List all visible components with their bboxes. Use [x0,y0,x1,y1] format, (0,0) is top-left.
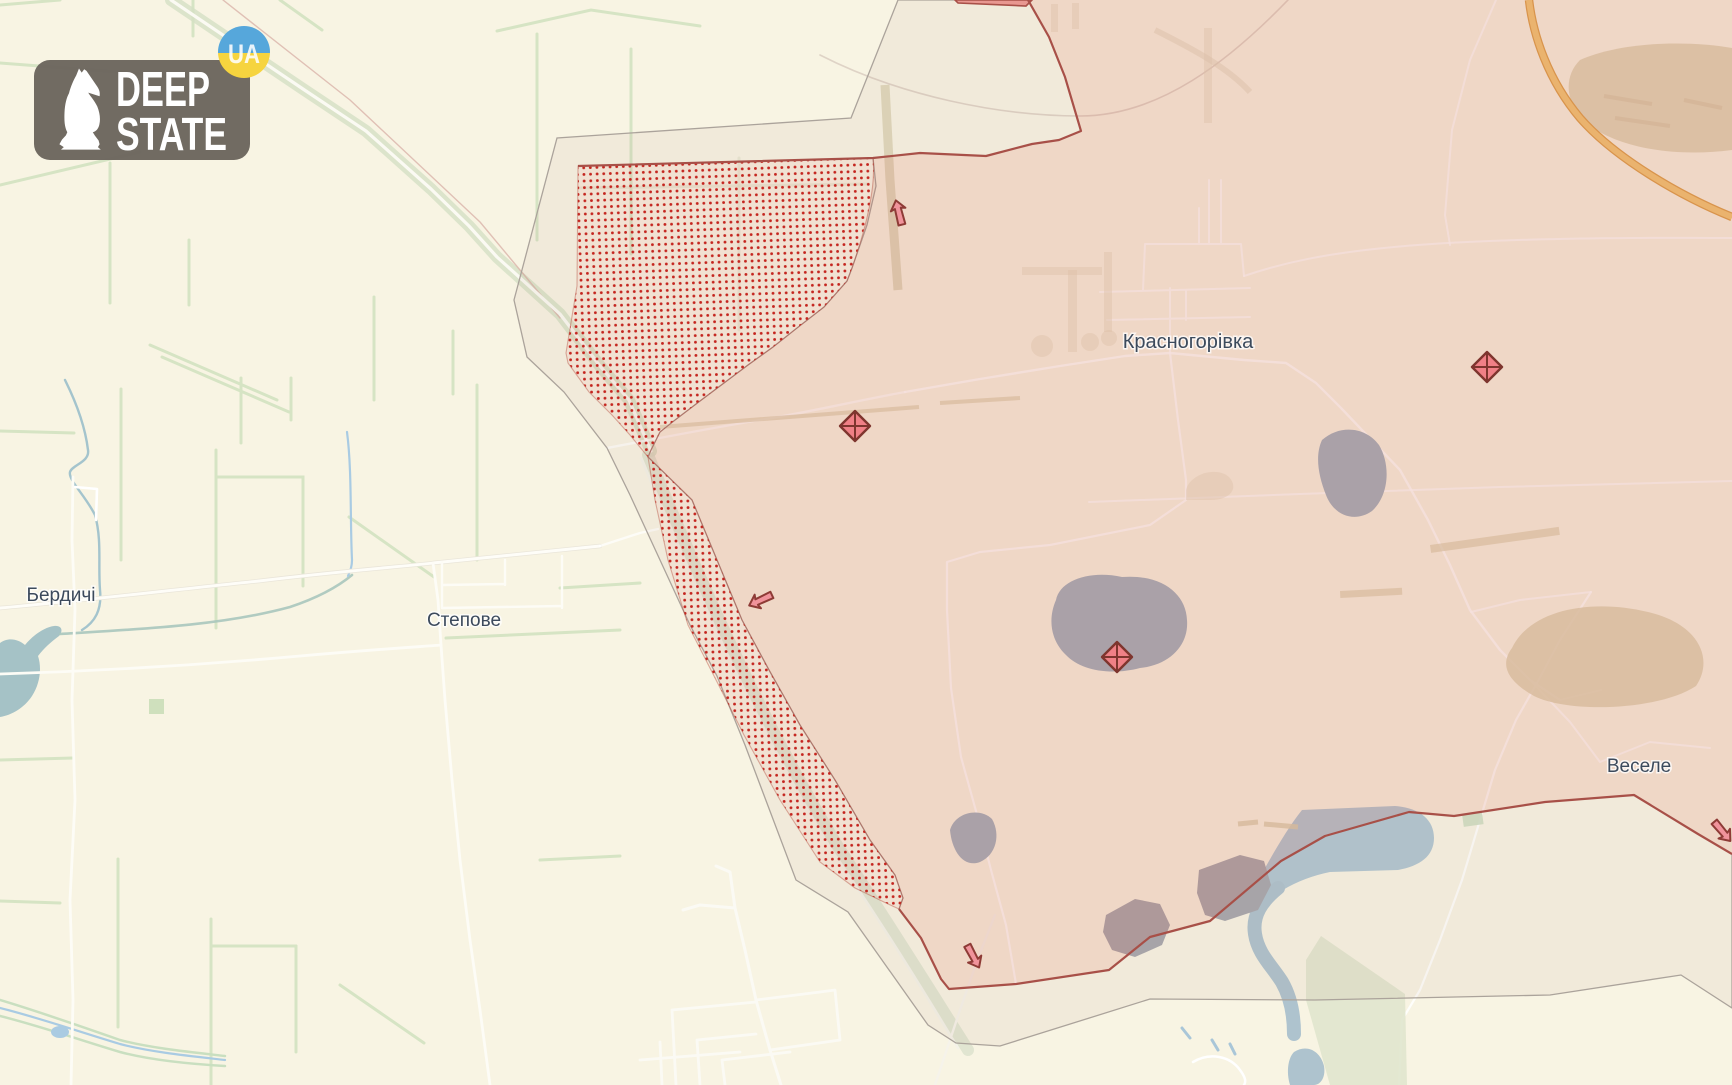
svg-text:Степове: Степове [427,610,501,631]
svg-text:UA: UA [228,39,260,69]
svg-text:Красногорівка: Красногорівка [1123,331,1254,353]
svg-text:Веселе: Веселе [1607,756,1671,777]
svg-text:STATE: STATE [116,108,227,160]
svg-text:Бердичі: Бердичі [27,585,96,606]
